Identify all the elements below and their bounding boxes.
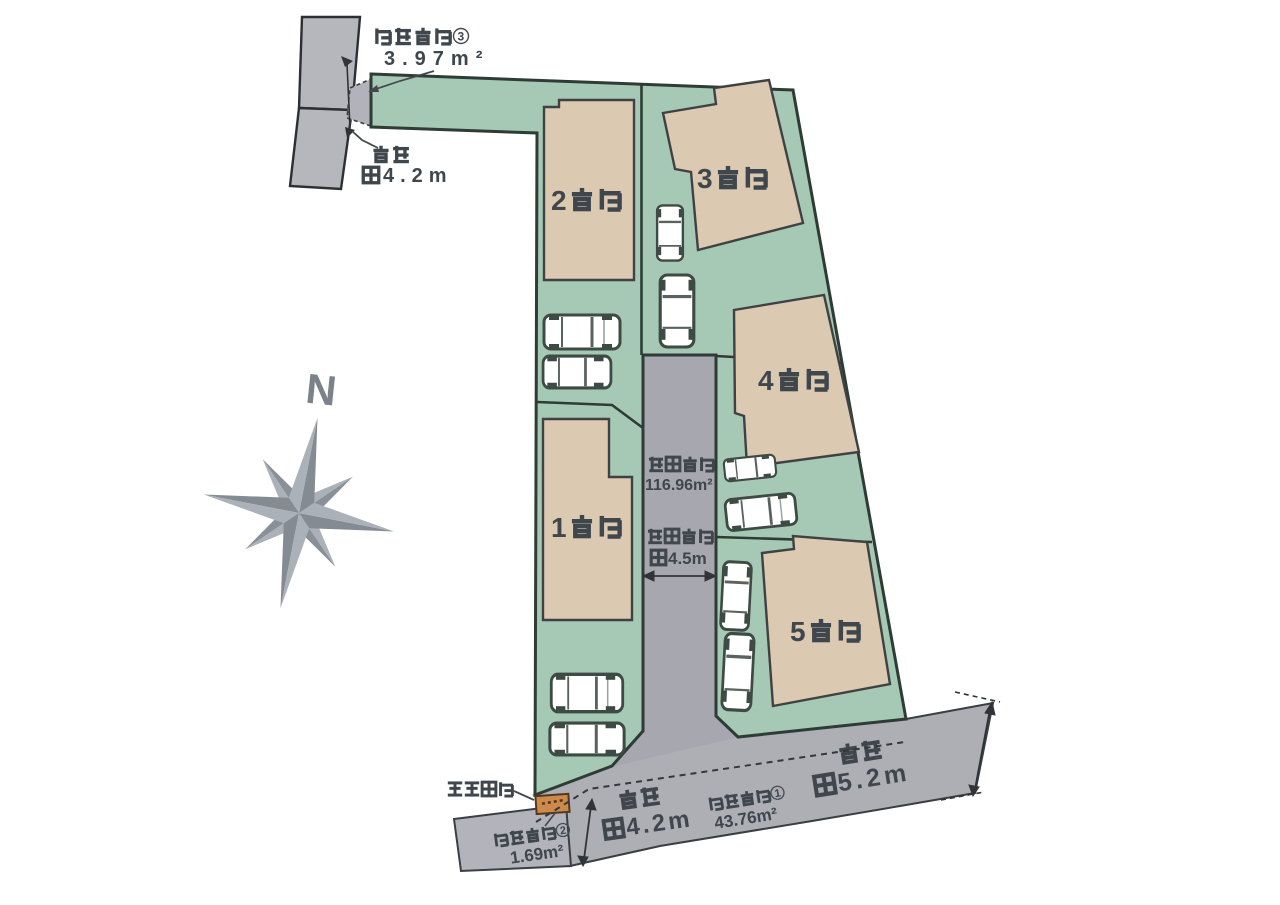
svg-text:3: 3 — [697, 163, 713, 194]
svg-text:3: 3 — [458, 30, 465, 44]
svg-text:5: 5 — [790, 616, 806, 647]
svg-text:2: 2 — [551, 185, 567, 216]
svg-text:4.2m: 4.2m — [383, 165, 453, 187]
svg-text:1: 1 — [551, 512, 567, 543]
svg-text:4: 4 — [758, 365, 774, 396]
svg-text:4.5m: 4.5m — [668, 549, 707, 568]
svg-text:116.96m²: 116.96m² — [645, 477, 713, 494]
svg-text:N: N — [304, 365, 339, 415]
svg-text:3.97m²: 3.97m² — [384, 48, 489, 70]
